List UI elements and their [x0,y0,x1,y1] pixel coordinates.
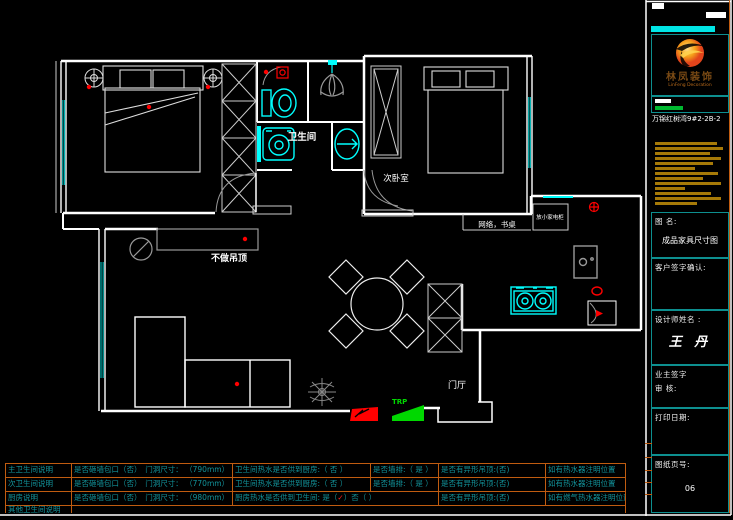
note-row1-heater: 如有热水器注明位置 [545,463,625,477]
tv-cabinet [157,229,258,250]
drawing-name: 成品家具尺寸图 [652,235,728,246]
note-row3-heater: 如有燃气热水器注明位置 [545,491,625,505]
note-row2-open: 是否砸墙包口（否） 门洞尺寸： （770mm） [71,477,232,491]
review-label: 审 核: [652,380,728,394]
bedside-lamp-left [85,69,103,87]
panel-right-rule [729,0,731,513]
note-row3-open: 是否砸墙包口（否） 门洞尺寸： （980mm） [71,491,232,505]
plant [308,378,336,406]
bath-door-mark [263,67,288,85]
print-date-box: 打印日期: [651,408,729,455]
sofa [135,317,290,407]
master-bed [103,66,203,172]
note-row2-label: 次卫生间说明 [5,477,71,491]
weak-power-wedge [392,405,424,421]
bedroom2-bed [424,67,508,173]
fridge [574,246,597,278]
bedside-lamp-right [204,69,222,87]
entry-threshold [438,402,492,422]
basin [335,129,359,159]
client-confirm-box: 客户签字确认: [651,258,729,310]
note-row3-label: 厨房说明 [5,491,71,505]
panel-cyan-strip [651,26,715,32]
kitchen-meter-box [588,301,616,325]
bathroom-label: 卫生间 [288,131,317,143]
no-ceiling-label: 不做吊顶 [211,252,247,264]
legend-box [651,96,729,113]
note-row2-ceiling: 是否有异形吊顶:(否) [438,477,545,491]
walls [61,56,641,411]
company-name-en: LinFeng Decoration [652,83,728,89]
print-date-label: 打印日期: [652,409,728,423]
note-row3-hot: 厨房热水是否供到卫生间: 是（✓）否（ ） [232,491,438,505]
drawing-name-box: 图 名: 成品家具尺寸图 [651,212,729,258]
living-window [99,229,105,411]
panel-top-bar1 [652,3,664,9]
master-window [56,61,66,213]
note-row1-hot: 卫生间热水是否供到厨房:（ 否 ） [232,463,370,477]
company-name-cn: 林凤装饰 [652,73,728,83]
note-row2-extra: 是否墙排:（ 是 ） [370,477,438,491]
sheet-border [0,0,731,516]
note-row1-extra: 是否墙排:（ 是 ） [370,463,438,477]
entry-label: 门厅 [448,379,466,391]
strong-power-wedge [350,407,378,421]
toilet [262,89,296,117]
notes-table: 主卫生间说明 是否砸墙包口（否） 门洞尺寸： （790mm） 卫生间热水是否供到… [5,463,625,513]
notes-paragraph [652,140,728,205]
note-row2-heater: 如有热水器注明位置 [545,477,625,491]
owner-sign-label: 业主签字 [652,366,728,380]
legend-bar-green [655,106,683,110]
note-row3-ceiling: 是否有异形吊顶:(否) [438,491,545,505]
dining-table [329,260,424,348]
legend-bar-white [655,99,671,103]
note-row2-hot: 卫生间热水是否供到厨房:（ 否 ） [232,477,370,491]
note-row1-open: 是否砸墙包口（否） 门洞尺寸： （790mm） [71,463,232,477]
designer-box: 设计师姓名 : 王 丹 [651,310,729,365]
note-row4-label: 其他卫生间说明 [5,505,71,514]
project-name: 万锦红树湾9#2-2B-2 [652,114,730,124]
company-logo-icon [670,37,710,69]
ceiling-fan-icon [130,238,152,260]
appliance-label: 放小家电柜 [536,213,564,221]
drawing-name-label: 图 名: [652,213,728,227]
page-number-label: 图纸页号: [652,456,728,470]
drain-label: TRP [392,398,407,406]
pantry-cabinet [428,284,462,352]
logo-box: 林凤装饰 LinFeng Decoration [651,34,729,96]
gas-meter-icon [590,203,599,212]
page-number: 06 [652,484,728,493]
kitchen-red-outlet [592,287,602,295]
hall-door-arc [253,170,398,214]
bedroom2-window [527,56,532,214]
designer-label: 设计师姓名 : [652,311,728,325]
bedroom2-wardrobe [371,66,401,158]
cad-sheet: { "colors": { "wall": "#ffffff", "fixtur… [0,0,733,520]
gas-stove [511,287,556,314]
floorplan-canvas[interactable]: 卫生间 次卧室 不做吊顶 门厅 网络，书桌 放小家电柜 TRP [0,0,733,520]
page-number-box: 图纸页号: 06 [651,455,729,513]
panel-top-bar2 [706,12,726,18]
designer-name: 王 丹 [652,331,728,350]
client-confirm-label: 客户签字确认: [652,259,728,273]
second-bedroom-label: 次卧室 [383,173,409,184]
note-row1-ceiling: 是否有异形吊顶:(否) [438,463,545,477]
network-desk-label: 网络，书桌 [478,219,516,229]
master-wardrobe [222,64,256,212]
note-row1-label: 主卫生间说明 [5,463,71,477]
owner-sign-box: 业主签字 审 核: [651,365,729,408]
shower-head [321,60,344,96]
